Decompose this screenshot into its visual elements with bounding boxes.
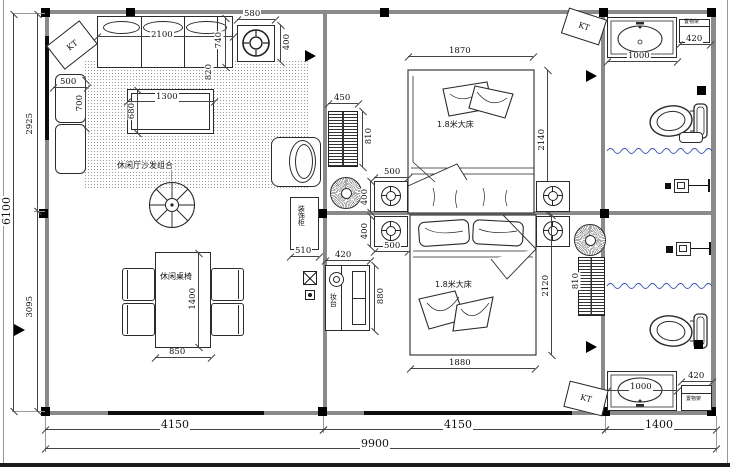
marker-triangle-icon	[305, 50, 316, 62]
dressing-table-label: 妆台	[329, 293, 336, 307]
ext-line	[12, 13, 45, 14]
chair-back	[238, 270, 239, 299]
dim-label: 500	[383, 168, 401, 177]
switch-icon	[303, 271, 317, 285]
dim-nightstand-w	[374, 177, 408, 178]
dim-sink-top	[607, 61, 677, 62]
kt-label: KT	[579, 393, 592, 404]
dim-label: 850	[168, 348, 186, 357]
shower-head-icon	[666, 242, 714, 257]
dim-label: 1000	[627, 52, 651, 61]
dim-label: 400	[283, 33, 292, 51]
dim-ceiling-unit-w	[237, 19, 275, 20]
wall-block	[697, 86, 706, 95]
window-bottom-bedroom	[364, 411, 572, 415]
dim-label: 9900	[360, 438, 390, 449]
dim-label: 400	[361, 222, 370, 240]
dresser-drawer-line	[353, 298, 365, 299]
sofa-group-label: 休闲厅沙发组合	[117, 161, 173, 170]
water-wave-line	[607, 281, 712, 289]
lamp-icon	[543, 186, 563, 206]
dim-label: 1400	[189, 287, 198, 311]
sofa-divider	[184, 17, 185, 67]
radiator	[578, 257, 605, 316]
dim-dresser-w	[325, 260, 370, 261]
ceiling-fan-icon	[147, 180, 197, 230]
dim-label: 500	[383, 242, 401, 251]
bath-mat	[679, 132, 703, 143]
dim-label: 500	[59, 78, 77, 87]
dim-armchair-d	[85, 80, 86, 128]
dim-nightstand2-d	[370, 216, 371, 247]
dim-label: 510	[294, 247, 312, 256]
shelf-line	[680, 26, 709, 27]
dim-label: 1880	[448, 359, 472, 368]
dim-left-lower	[37, 211, 38, 411]
dim-label: 4150	[160, 419, 190, 430]
dim-nightstand2-w	[374, 251, 408, 252]
marker-triangle-icon	[586, 341, 597, 353]
bed1-label: 1.8米大床	[437, 120, 474, 129]
dim-left-upper	[37, 14, 38, 211]
dim-label: 2100	[150, 31, 174, 40]
dim-label: 680	[128, 102, 137, 120]
dim-ceiling-unit-d	[280, 25, 281, 62]
chair-back	[127, 270, 128, 299]
floor-plan-canvas: 装饰柜 KT 休闲厅沙发组合 休闲桌椅 580 400 2100 740 820…	[0, 0, 730, 473]
kt-label: KT	[65, 38, 79, 52]
lamp-icon	[543, 221, 563, 241]
shelf-bottom-label: 置物架	[686, 397, 701, 403]
ceiling-fixture-icon	[241, 28, 271, 58]
dim-bed1-w	[408, 56, 533, 57]
column	[599, 8, 608, 17]
dim-radiator-w	[328, 103, 358, 104]
dim-cabinet-w	[290, 256, 319, 257]
bed-double-1	[405, 64, 537, 214]
dim-label: 4150	[443, 419, 473, 430]
dim-label: 450	[333, 94, 351, 103]
wall-block	[694, 340, 703, 349]
shower-head-icon	[665, 179, 713, 193]
dim-label: 880	[377, 287, 386, 305]
dim-shelf-bottom	[681, 381, 712, 382]
marker-triangle-icon	[14, 324, 25, 336]
frame-left	[3, 0, 4, 464]
socket-icon	[305, 290, 315, 300]
dim-label: 3095	[26, 295, 35, 319]
dim-label: 820	[205, 63, 214, 81]
dim-radiator-l	[362, 111, 363, 167]
dining-chair	[211, 303, 244, 336]
dim-shelf-top	[679, 44, 710, 45]
column	[318, 209, 327, 218]
dim-left-total	[13, 14, 14, 411]
dim-nightstand-d	[370, 181, 371, 212]
shelf-top-label: 置物架	[684, 20, 699, 26]
dim-label: 400	[361, 188, 370, 206]
dim-table-d	[137, 90, 138, 133]
dining-chair	[211, 268, 244, 301]
stool-inner	[333, 276, 340, 283]
water-wave-line	[607, 146, 712, 154]
exhaust-fan-icon	[574, 224, 606, 256]
dim-label: 2925	[26, 112, 35, 136]
dining-table	[155, 252, 211, 348]
dim-label: 580	[243, 10, 261, 19]
dim-label: 1870	[448, 47, 472, 56]
dim-dining-l	[198, 253, 199, 347]
dim-dresser-l	[374, 265, 375, 331]
frame-bottom	[0, 463, 730, 467]
dim-label: 1400	[644, 419, 674, 430]
lamp-icon	[381, 186, 401, 206]
lounge-chair-back-inner	[295, 144, 313, 179]
dim-label: 1300	[155, 93, 179, 102]
dim-bed2-l	[551, 215, 552, 355]
bed2-label: 1.8米大床	[435, 280, 472, 289]
dim-label: 420	[334, 251, 352, 260]
dim-armchair-w	[53, 87, 87, 88]
dim-label: 2140	[538, 128, 547, 152]
dim-label: 2120	[542, 274, 551, 298]
column	[707, 8, 716, 17]
dim-label: 740	[215, 31, 224, 49]
column	[600, 209, 609, 218]
marker-triangle-icon	[586, 70, 597, 82]
dim-label: 1000	[629, 383, 653, 392]
dim-label: 420	[687, 372, 705, 381]
dim-bed2-w	[410, 368, 535, 369]
sofa-cushion	[103, 21, 140, 34]
chair-back	[238, 305, 239, 334]
sofa-divider	[141, 17, 142, 67]
dim-label: 6100	[1, 196, 12, 226]
frame-right	[727, 0, 728, 464]
dim-sofa-d	[225, 18, 226, 67]
column	[318, 407, 327, 416]
dim-label: 420	[685, 35, 703, 44]
window-bottom-living	[108, 411, 264, 415]
kt-label: KT	[577, 20, 591, 32]
deco-cabinet-label: 装饰柜	[297, 205, 304, 226]
dim-dining-w	[155, 357, 211, 358]
window-left	[45, 36, 49, 140]
column	[380, 8, 389, 17]
radiator	[328, 111, 358, 167]
dim-label: 810	[572, 272, 581, 290]
dim-label: 810	[365, 127, 374, 145]
lamp-icon	[381, 221, 401, 241]
armchair	[55, 124, 86, 174]
bed-double-2	[407, 213, 539, 361]
dim-label: 700	[76, 94, 85, 112]
dining-set-label: 休闲桌椅	[160, 272, 192, 281]
shelf-line	[682, 393, 711, 394]
exhaust-fan-icon	[330, 177, 362, 209]
chair-back	[127, 305, 128, 334]
